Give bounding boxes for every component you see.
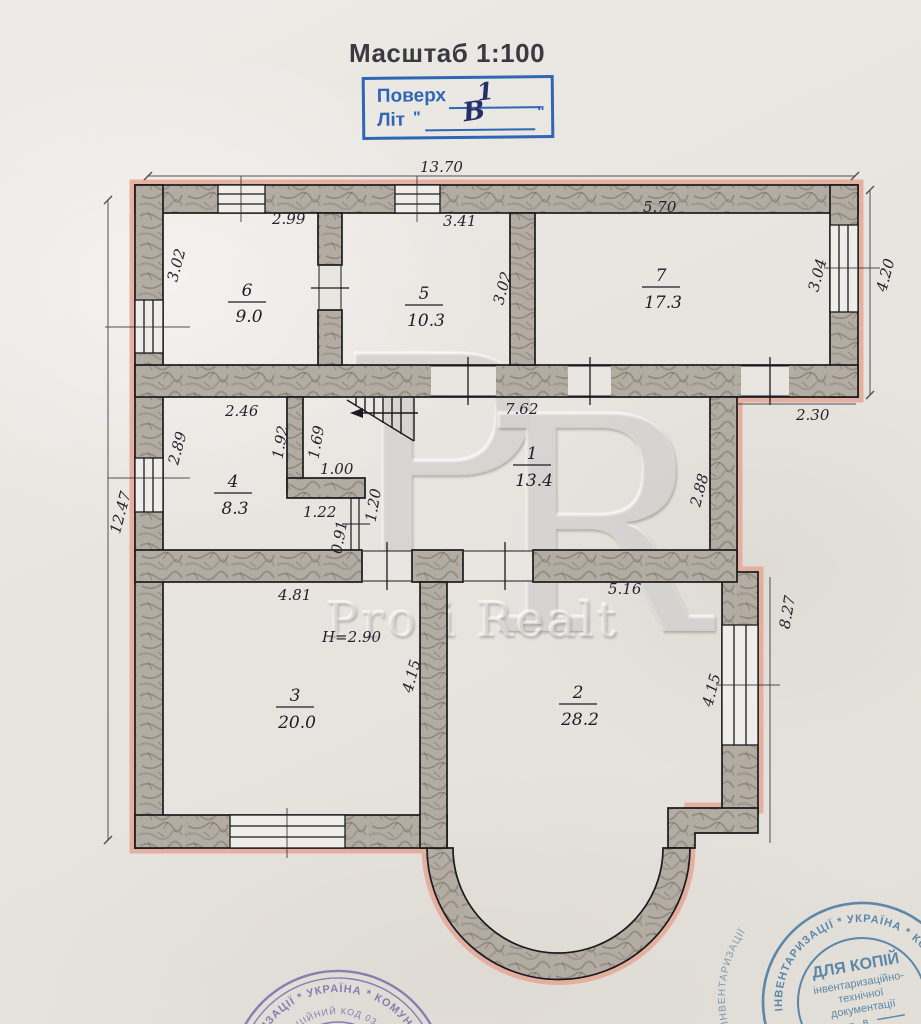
dim-hall-width: 7.62	[505, 400, 538, 418]
wall-room6-5-upper	[318, 213, 342, 265]
dim-room5-width: 3.41	[443, 212, 476, 230]
room-1-area: 13.4	[515, 471, 553, 491]
window-left-2	[135, 458, 163, 512]
dim-closet-d: 1.22	[303, 503, 336, 521]
door-room6-5	[311, 266, 349, 309]
wall-corridor-bottom-b	[412, 550, 463, 582]
wall-room3-2	[420, 582, 447, 848]
room-7-number: 7	[656, 266, 667, 286]
dim-closet-b: 1.69	[305, 424, 329, 460]
dim-closet-c: 1.00	[320, 460, 354, 478]
door-corridor-bottom-1	[363, 542, 411, 590]
staircase-symbol	[347, 398, 418, 441]
wall-room5-7	[510, 213, 535, 365]
room-7-label: 7 17.3	[642, 266, 682, 313]
dim-top-total: 13.70	[420, 158, 463, 176]
dim-room2-width: 5.16	[608, 580, 642, 598]
dim-room4-left: 2.89	[164, 429, 190, 467]
room-6-number: 6	[242, 281, 253, 301]
wall-bay-arc	[427, 848, 690, 980]
room-1-label: 1 13.4	[513, 444, 553, 491]
room-3-number: 3	[290, 686, 301, 706]
stair-direction-arrow	[350, 408, 363, 418]
room-3-label: 3 20.0	[276, 686, 316, 733]
wall-corridor-right	[710, 397, 737, 572]
dim-room3-width: 4.81	[277, 586, 311, 604]
scanned-floor-plan-page: Масштаб 1:100 Поверх 1 Літ " В " P R Pro…	[0, 0, 921, 1024]
dim-room7-right: 3.04	[804, 257, 830, 294]
room-3-area: 20.0	[277, 713, 316, 733]
room-2-label: 2 28.2	[559, 683, 599, 730]
wall-corridor-bottom-a	[135, 550, 362, 582]
room-7-area: 17.3	[644, 293, 682, 313]
dim-right-top: 4.20	[872, 256, 898, 294]
stamp-right-line4: в	[862, 1016, 870, 1024]
room-2-number: 2	[572, 683, 584, 703]
dim-room4-width: 2.46	[224, 402, 259, 420]
room-5-label: 5 10.3	[405, 284, 445, 331]
wall-left	[135, 185, 163, 848]
bti-stamp-left: ІНВЕНТАРИЗАЦІЇ * УКРАЇНА * КОМУНАЛЬ МАЙН…	[208, 948, 467, 1024]
room-5-area: 10.3	[407, 311, 445, 331]
dim-right-step: 2.30	[795, 406, 830, 424]
dimension-lines	[104, 172, 880, 858]
dim-room7-width: 5.70	[643, 198, 677, 216]
ceiling-height-note: H=2.90	[321, 628, 382, 646]
door-corridor-bottom-2	[464, 542, 532, 590]
dimension-labels: 13.70 12.47 2.99 3.41 5.70 3.02 3.02 3.0…	[106, 158, 898, 710]
wall-room6-5-lower	[318, 310, 342, 365]
room-6-area: 9.0	[235, 307, 262, 327]
room-4-number: 4	[227, 472, 239, 492]
dim-hall-right: 2.88	[686, 472, 712, 510]
room-1-number: 1	[527, 444, 538, 464]
wall-bottom-right	[668, 808, 758, 848]
room-2-area: 28.2	[560, 710, 599, 730]
wall-closet	[287, 478, 365, 498]
floor-plan-drawing: 13.70 12.47 2.99 3.41 5.70 3.02 3.02 3.0…	[0, 0, 921, 1024]
dim-room6-left: 3.02	[163, 247, 189, 284]
room-6-label: 6 9.0	[228, 281, 266, 327]
dim-right-bottom: 8.27	[776, 594, 800, 630]
room-4-label: 4 8.3	[214, 472, 252, 519]
dim-room2-right: 4.15	[698, 672, 724, 710]
wall-corridor-bottom-c	[533, 550, 737, 582]
room-labels: 6 9.0 5 10.3 7 17.3 4 8.3 1	[214, 266, 682, 733]
room-5-number: 5	[419, 284, 430, 304]
dim-room6-width: 2.99	[271, 210, 306, 228]
room-4-area: 8.3	[221, 499, 248, 519]
